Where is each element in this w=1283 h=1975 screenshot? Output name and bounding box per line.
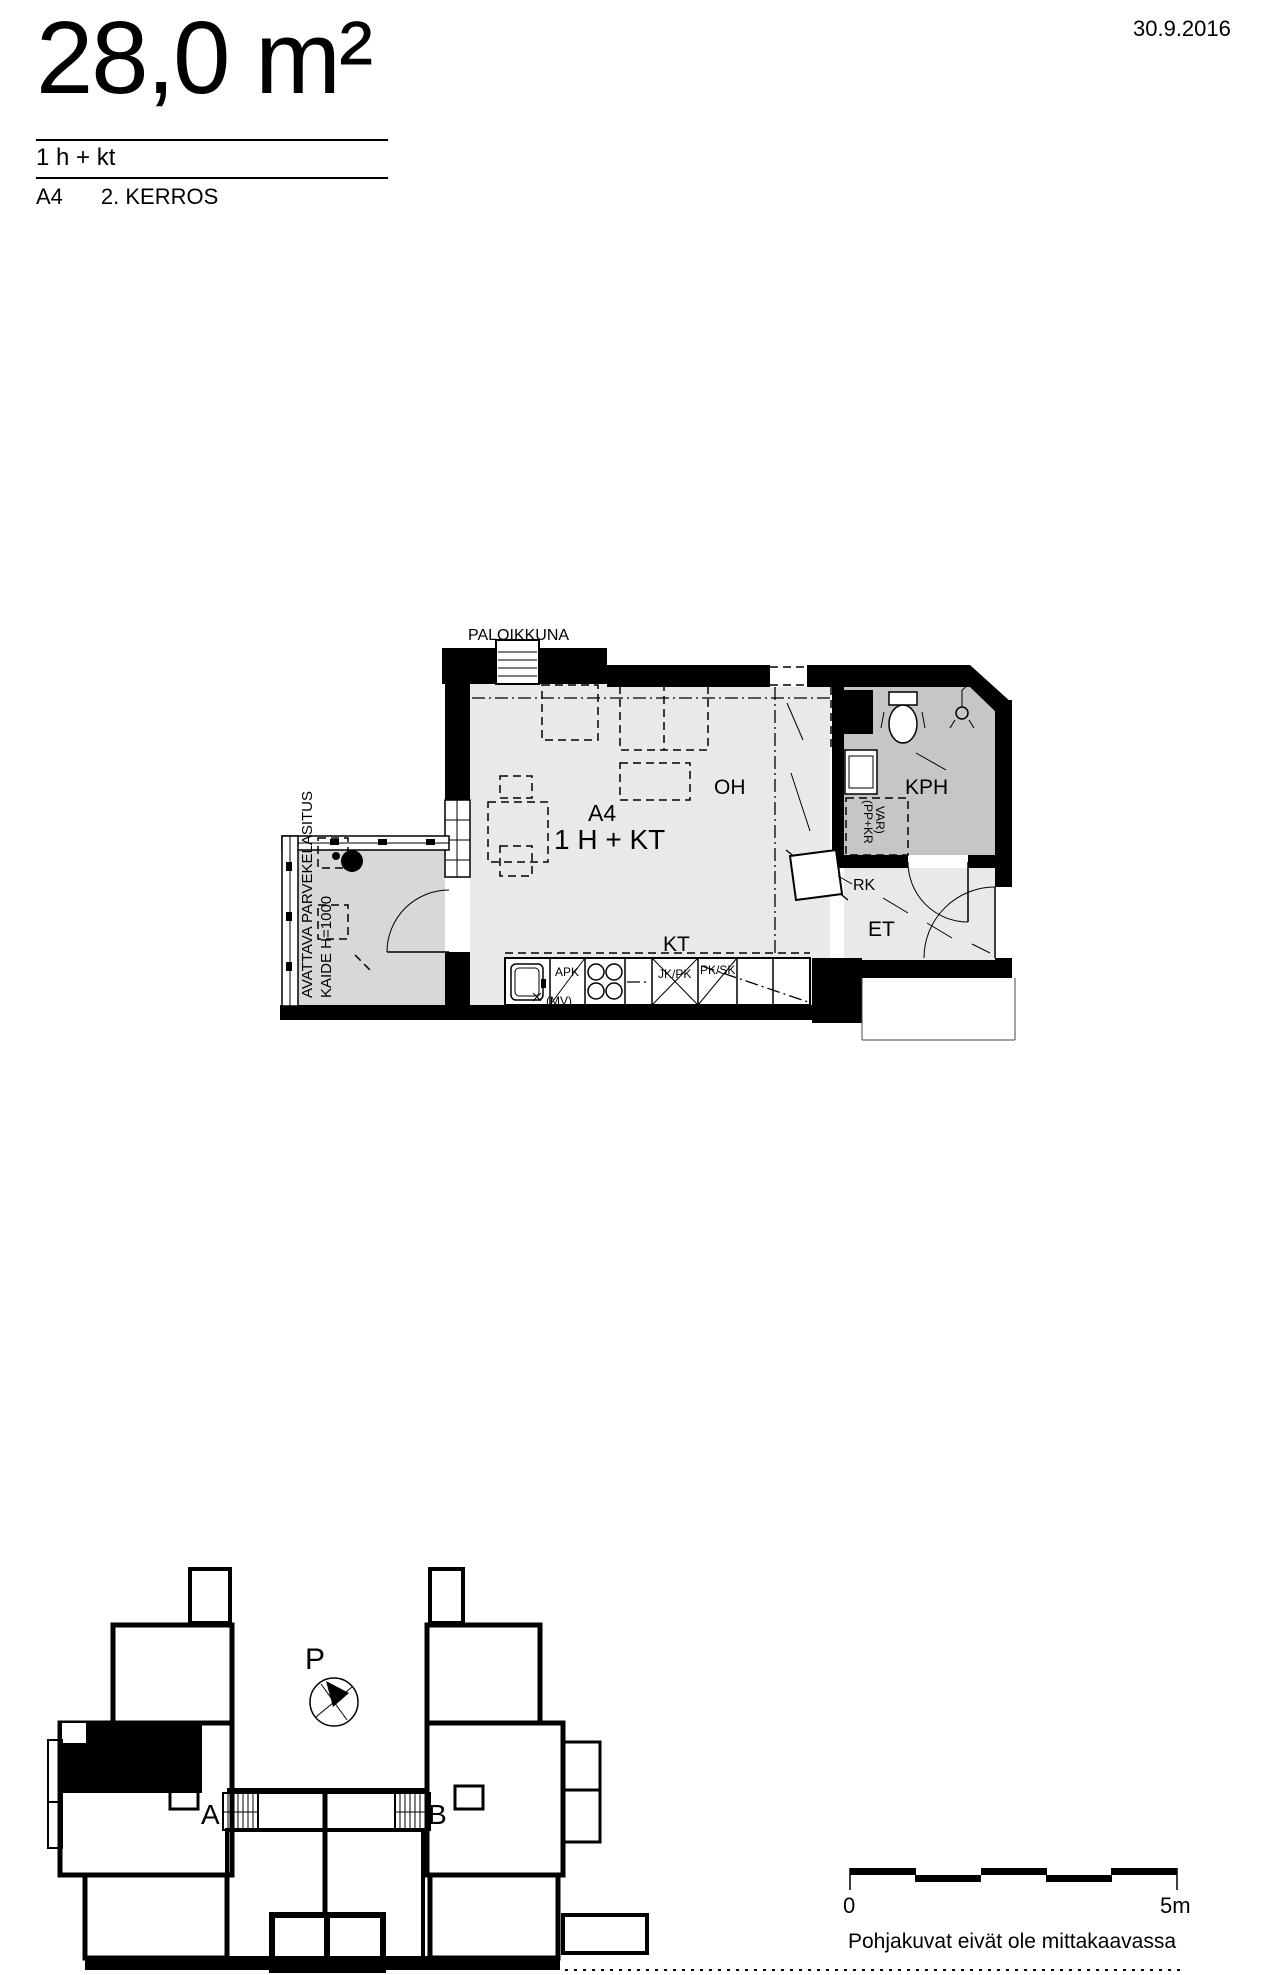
living-room-label: OH [714, 776, 746, 799]
bathroom-label: KPH [905, 776, 948, 799]
unit-id-plan-label: A4 [588, 800, 616, 826]
floor-plan-drawing: PALOIKKUNA [0, 0, 1283, 1975]
balcony-drain [332, 852, 340, 860]
balcony-column [341, 850, 363, 872]
fire-window-label: PALOIKKUNA [468, 627, 569, 644]
wing-a-lower [85, 1875, 227, 1958]
wing-b-upper [427, 1625, 540, 1723]
hall-label: ET [868, 918, 895, 941]
fire-window [496, 640, 539, 684]
north-compass-icon [310, 1678, 358, 1726]
wing-a-upper [113, 1625, 232, 1723]
plan-document-page: 28,0 m² 1 h + kt A42. KERROS 30.9.2016 [0, 0, 1283, 1975]
site-plan: P A B [48, 1569, 1180, 1970]
high-window-opening [770, 665, 807, 687]
unit-type-label: 1 H + KT [554, 824, 665, 855]
stair-b-label: B [428, 1799, 447, 1830]
washbasin-icon [840, 750, 877, 794]
stairwell-a-hatch [223, 1793, 258, 1830]
exterior-corridor [862, 978, 1015, 1040]
disclaimer-text: Pohjakuvat eivät ole mittakaavassa [848, 1930, 1176, 1954]
site-bottom-wall [85, 1956, 560, 1970]
kitchen-label: KT [663, 933, 690, 956]
cabinet-label: PK/SK [700, 963, 735, 977]
north-label: P [305, 1643, 325, 1676]
wing-b-mid [427, 1723, 563, 1875]
wing-b-lower [430, 1875, 558, 1958]
fridge-label: JK/PK [658, 967, 691, 981]
chimney-b [430, 1569, 463, 1623]
balcony-right-1 [563, 1742, 600, 1790]
balcony-right-2 [563, 1790, 600, 1842]
porch-b [455, 1786, 483, 1809]
chimney-a [190, 1569, 230, 1623]
closet-note-line2: VAR) [873, 806, 887, 834]
scale-bar: 0 5m [843, 1868, 1191, 1918]
microwave-label: (MV) [546, 994, 572, 1008]
terrace-right [563, 1915, 647, 1953]
scale-start-label: 0 [843, 1893, 855, 1918]
highlighted-unit-notch [62, 1723, 86, 1743]
dishwasher-label: APK [555, 965, 579, 979]
stairwell-b-hatch [395, 1793, 430, 1830]
closet-note-line1: (PP+KR [861, 800, 875, 844]
balcony-note-line1: AVATTAVA PARVEKELASITUS [299, 791, 316, 998]
balcony-note-line2: KAIDE H=1000 [318, 896, 335, 998]
riser-label: RK [853, 877, 876, 894]
stair-a-label: A [201, 1799, 220, 1830]
scale-end-label: 5m [1160, 1893, 1191, 1918]
